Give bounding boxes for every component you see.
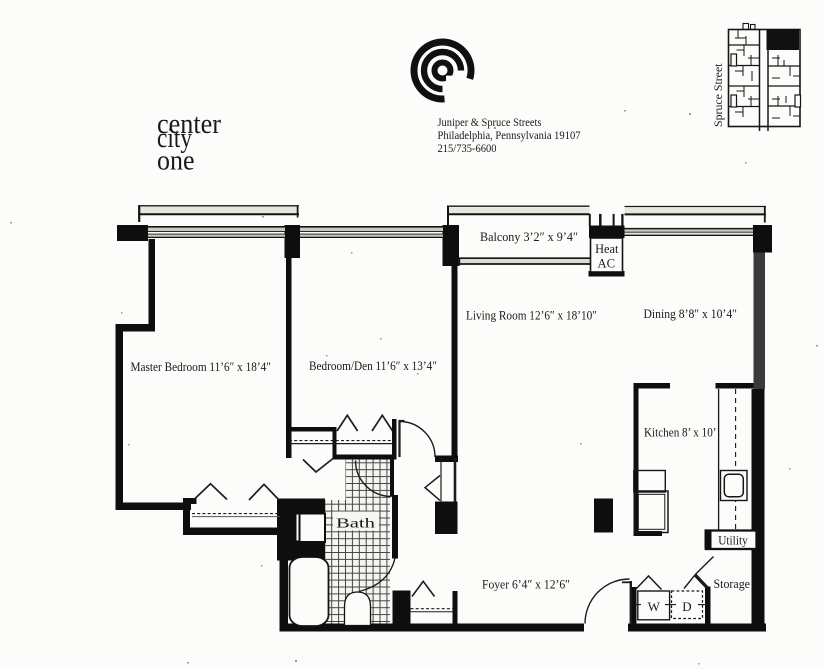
svg-text:Living Room 12’6″ x 18’10″: Living Room 12’6″ x 18’10″ — [466, 309, 597, 323]
svg-text:Philadelphia, Pennsylvania 191: Philadelphia, Pennsylvania 19107 — [438, 130, 581, 142]
svg-text:Foyer 6’4″ x 12’6″: Foyer 6’4″ x 12’6″ — [482, 577, 570, 591]
svg-text:Storage: Storage — [714, 577, 751, 591]
svg-text:215/735-6600: 215/735-6600 — [438, 143, 497, 155]
svg-text:Heat: Heat — [595, 242, 619, 256]
svg-text:W: W — [648, 599, 661, 614]
svg-text:Utility: Utility — [718, 534, 748, 548]
svg-text:Master Bedroom 11’6″ x 18’4″: Master Bedroom 11’6″ x 18’4″ — [131, 360, 272, 374]
svg-text:one: one — [157, 146, 195, 177]
svg-text:Juniper & Spruce Streets: Juniper & Spruce Streets — [438, 117, 542, 129]
svg-text:AC: AC — [598, 257, 616, 271]
svg-text:Bedroom/Den 11’6″ x 13’4″: Bedroom/Den 11’6″ x 13’4″ — [309, 359, 437, 373]
svg-text:Spruce Street: Spruce Street — [712, 63, 725, 127]
svg-text:Dining 8’8″ x 10’4″: Dining 8’8″ x 10’4″ — [644, 307, 738, 321]
svg-text:Balcony 3’2″ x 9’4″: Balcony 3’2″ x 9’4″ — [480, 230, 578, 244]
svg-text:Kitchen 8’ x 10’: Kitchen 8’ x 10’ — [644, 425, 717, 439]
svg-text:D: D — [682, 599, 691, 614]
svg-text:Bath: Bath — [336, 516, 375, 531]
